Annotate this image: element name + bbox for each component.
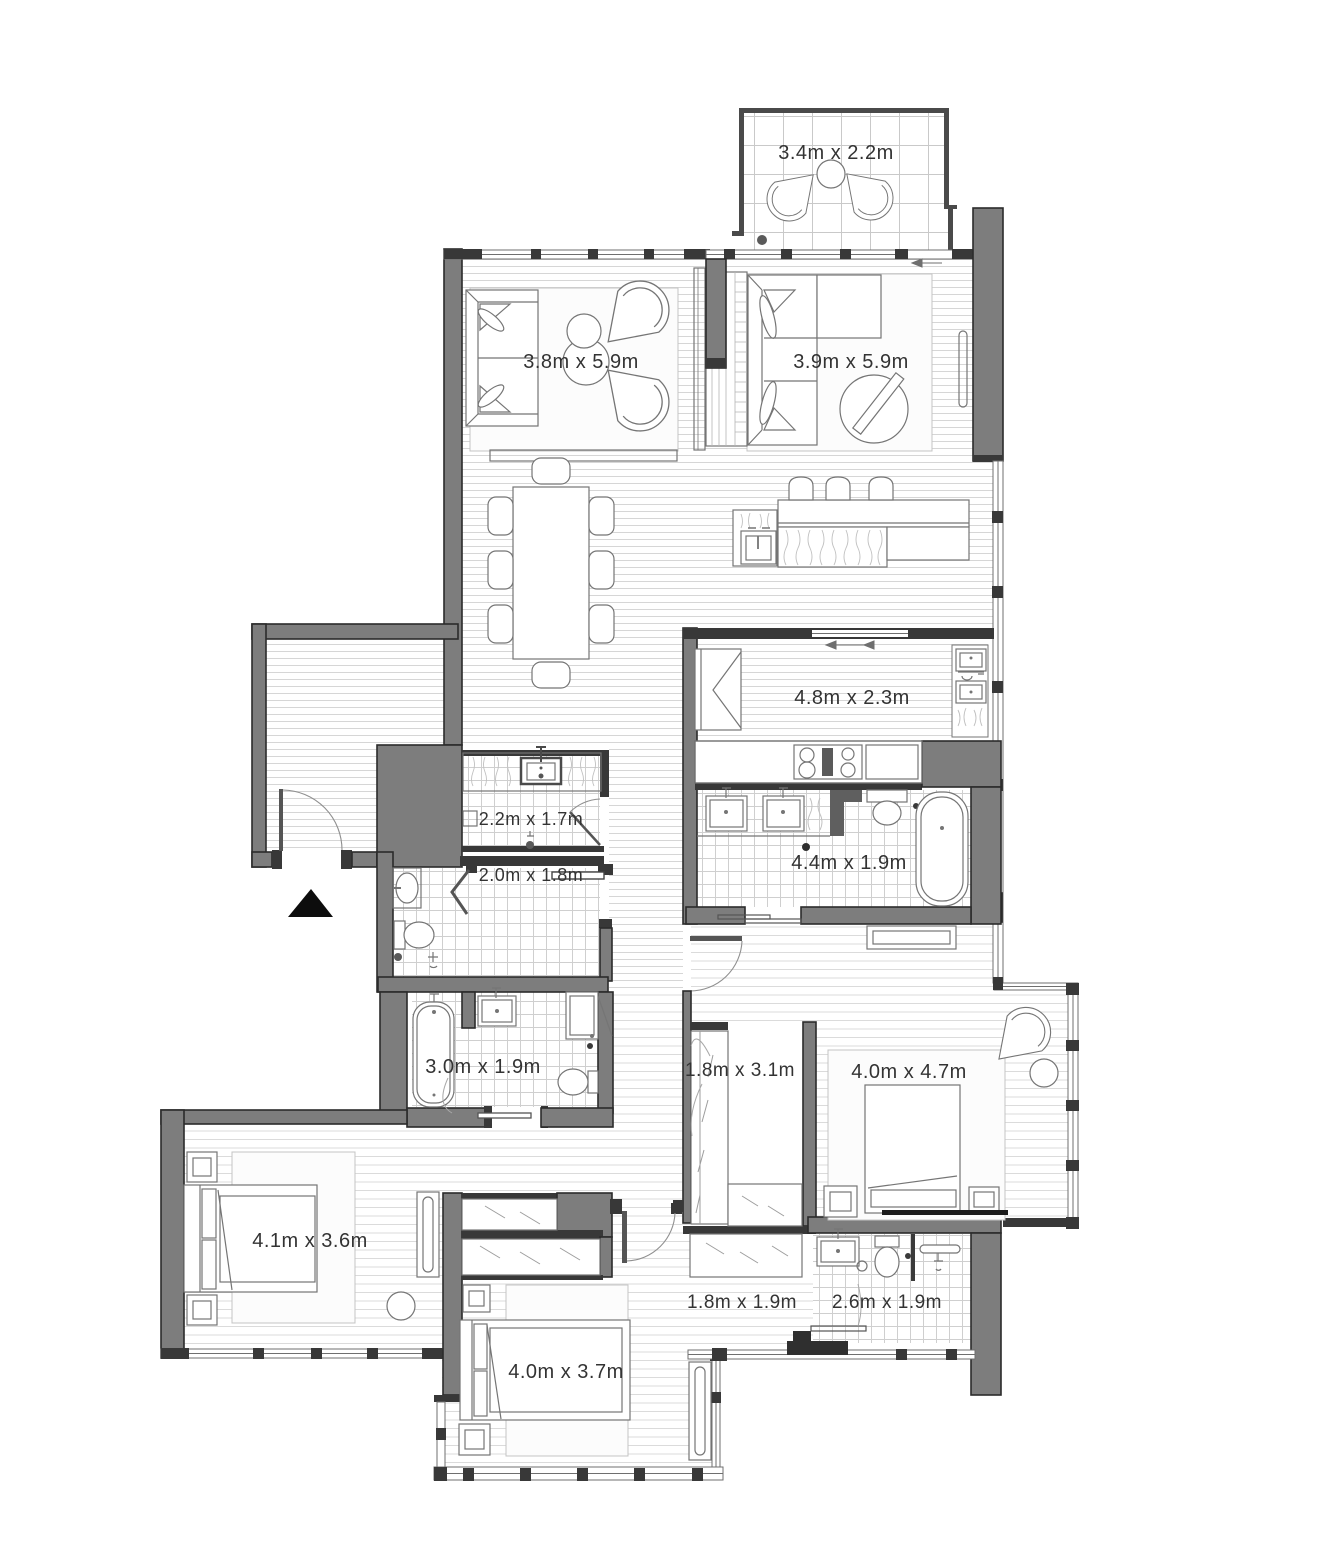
svg-text:3.0m x 1.9m: 3.0m x 1.9m xyxy=(425,1056,541,1078)
svg-text:4.0m x 4.7m: 4.0m x 4.7m xyxy=(851,1061,967,1083)
svg-text:4.0m x 3.7m: 4.0m x 3.7m xyxy=(508,1361,624,1383)
svg-text:4.1m x 3.6m: 4.1m x 3.6m xyxy=(252,1230,368,1252)
svg-text:4.8m x 2.3m: 4.8m x 2.3m xyxy=(794,687,910,709)
svg-text:2.6m x 1.9m: 2.6m x 1.9m xyxy=(832,1292,942,1313)
svg-text:3.8m x 5.9m: 3.8m x 5.9m xyxy=(523,351,639,373)
svg-text:2.2m x 1.7m: 2.2m x 1.7m xyxy=(479,809,584,829)
svg-text:2.0m x 1.8m: 2.0m x 1.8m xyxy=(479,865,584,885)
svg-text:1.8m x 1.9m: 1.8m x 1.9m xyxy=(687,1292,797,1313)
svg-text:3.9m x 5.9m: 3.9m x 5.9m xyxy=(793,351,909,373)
svg-text:3.4m x 2.2m: 3.4m x 2.2m xyxy=(778,142,894,164)
svg-text:1.8m x 3.1m: 1.8m x 3.1m xyxy=(685,1060,795,1081)
svg-text:4.4m x 1.9m: 4.4m x 1.9m xyxy=(791,852,907,874)
